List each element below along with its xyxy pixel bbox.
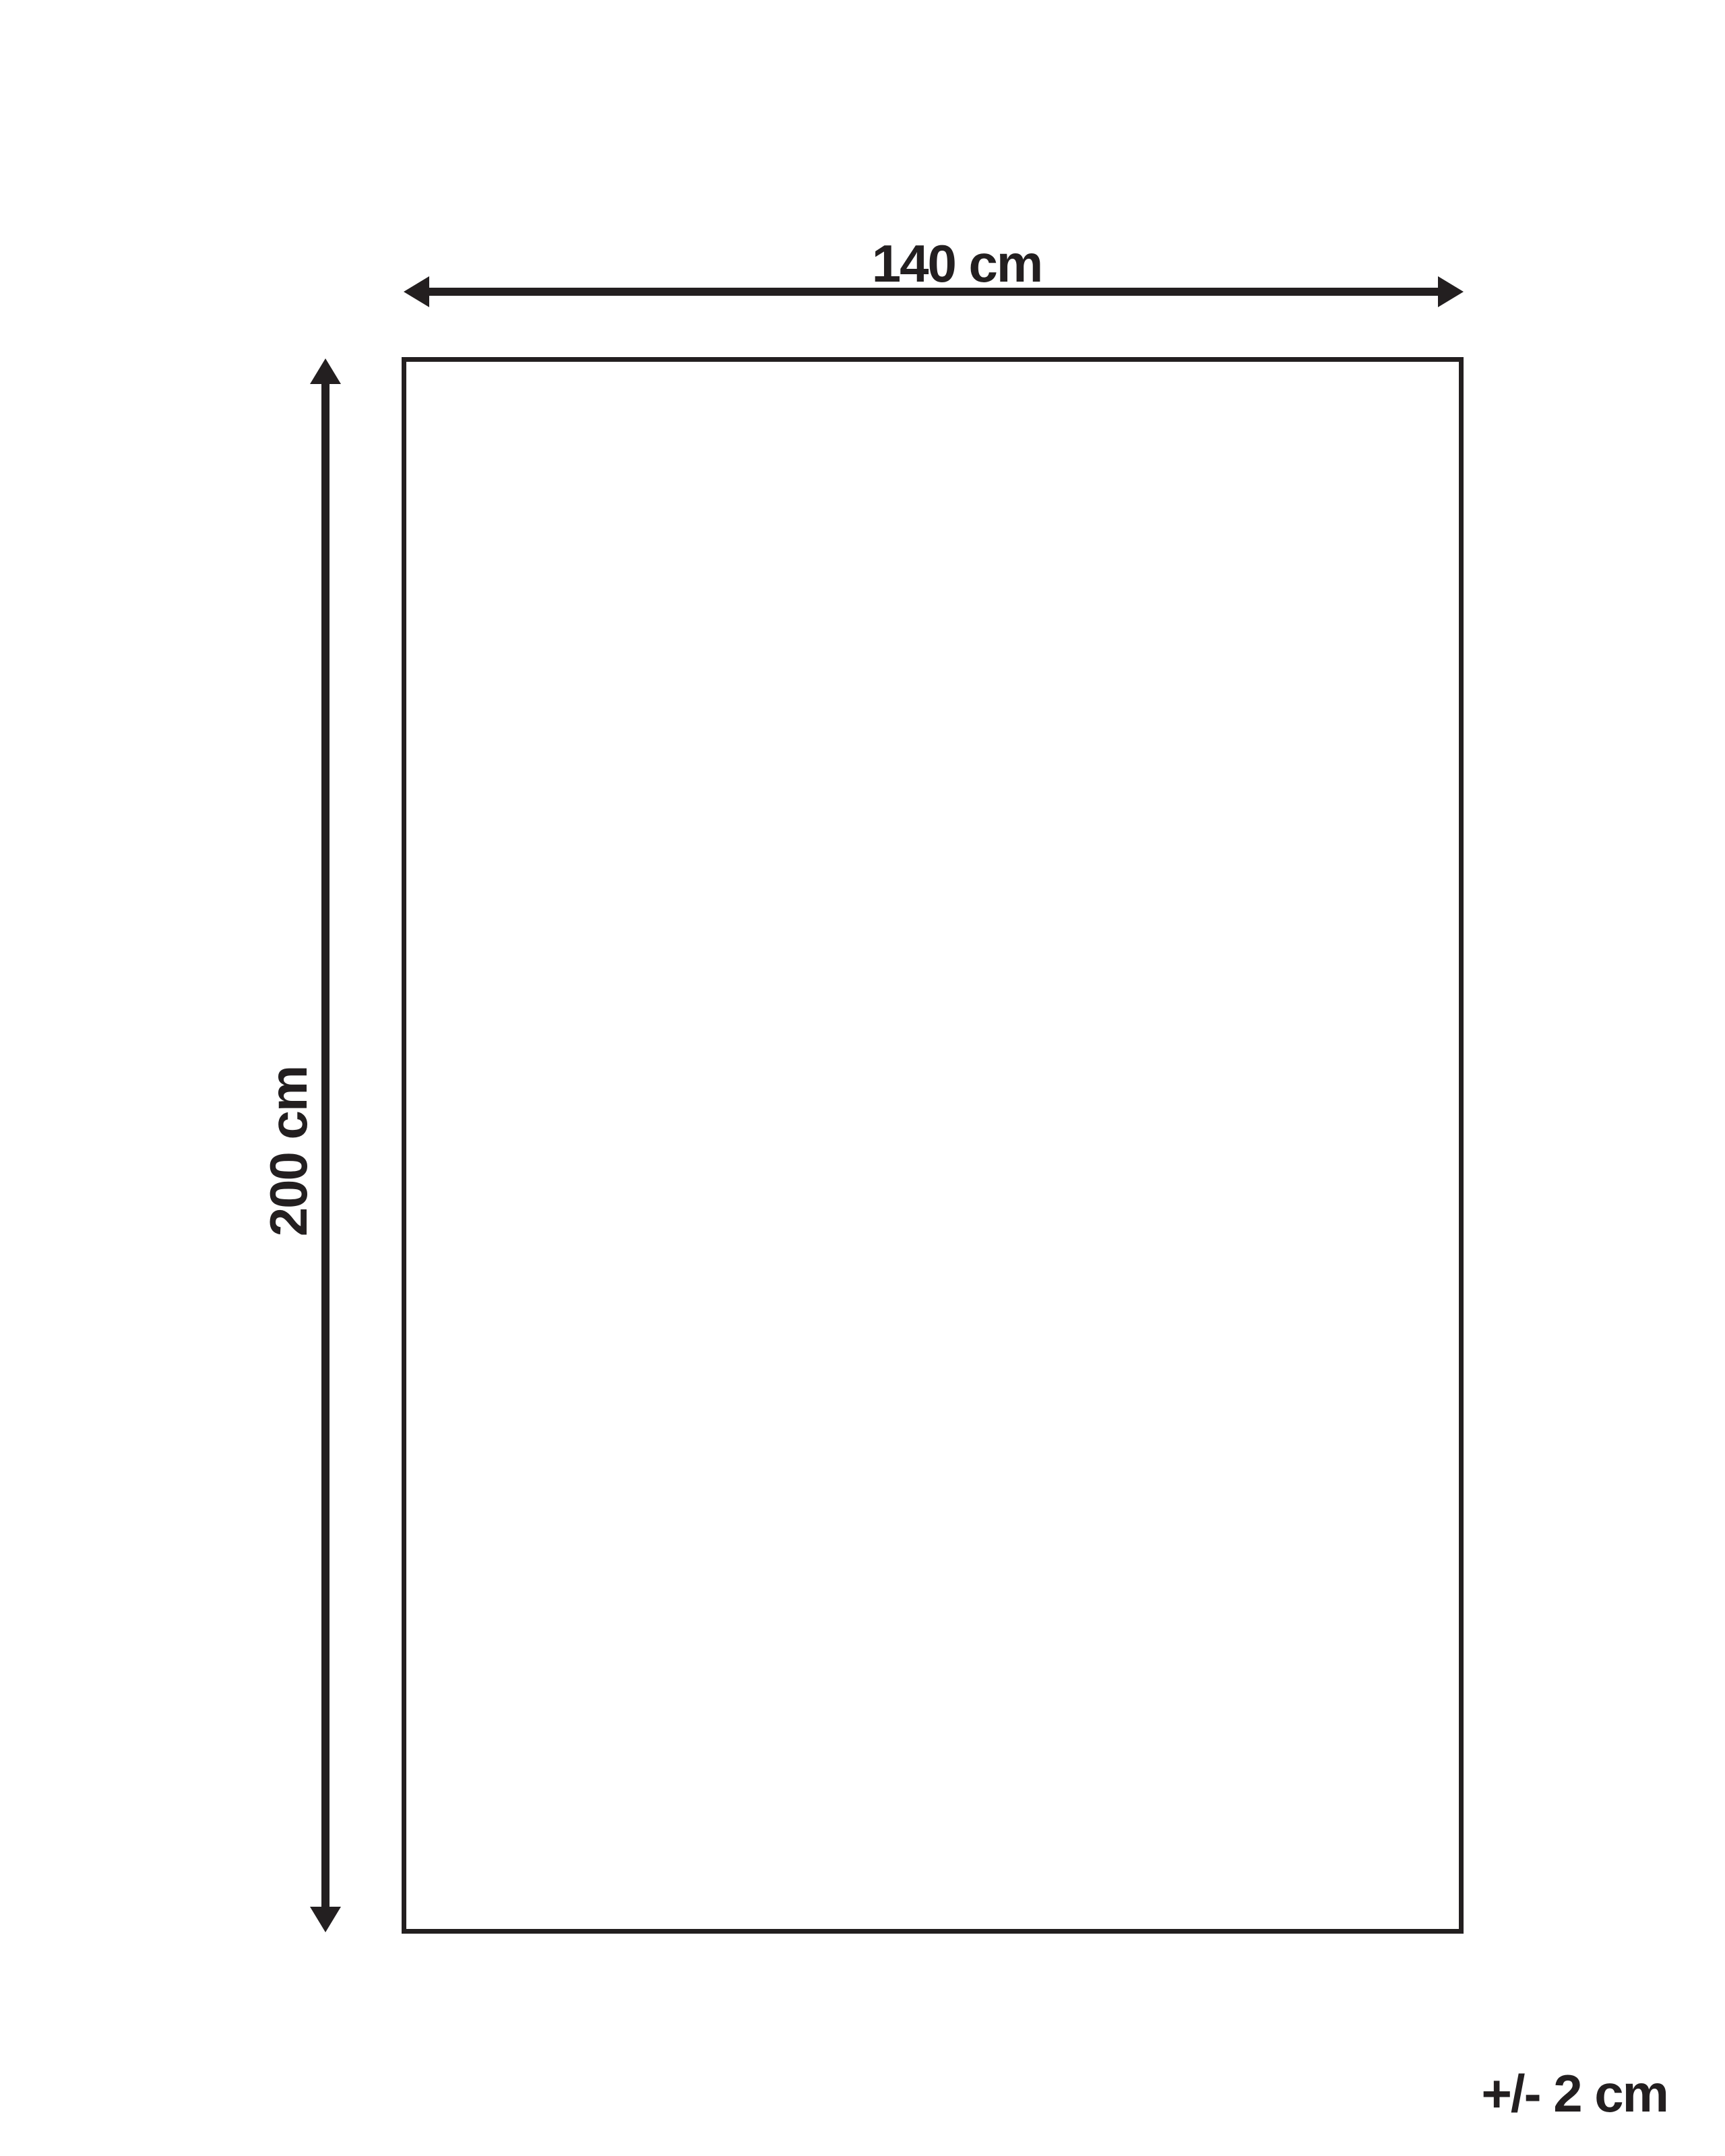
horizontal-arrow-shaft — [429, 288, 1438, 296]
tolerance-label: +/- 2 cm — [1481, 2067, 1668, 2120]
vertical-dimension-arrow-icon — [310, 358, 341, 1932]
horizontal-dimension-arrow-icon — [404, 276, 1464, 307]
vertical-arrow-shaft — [321, 384, 330, 1907]
arrow-right-head-icon — [1438, 276, 1464, 307]
dimension-diagram: 140 cm 200 cm +/- 2 cm — [0, 0, 1725, 2156]
arrow-left-head-icon — [404, 276, 429, 307]
arrow-up-head-icon — [310, 358, 341, 384]
height-dimension-label: 200 cm — [262, 1067, 315, 1237]
product-outline-rectangle — [402, 357, 1464, 1934]
arrow-down-head-icon — [310, 1907, 341, 1932]
